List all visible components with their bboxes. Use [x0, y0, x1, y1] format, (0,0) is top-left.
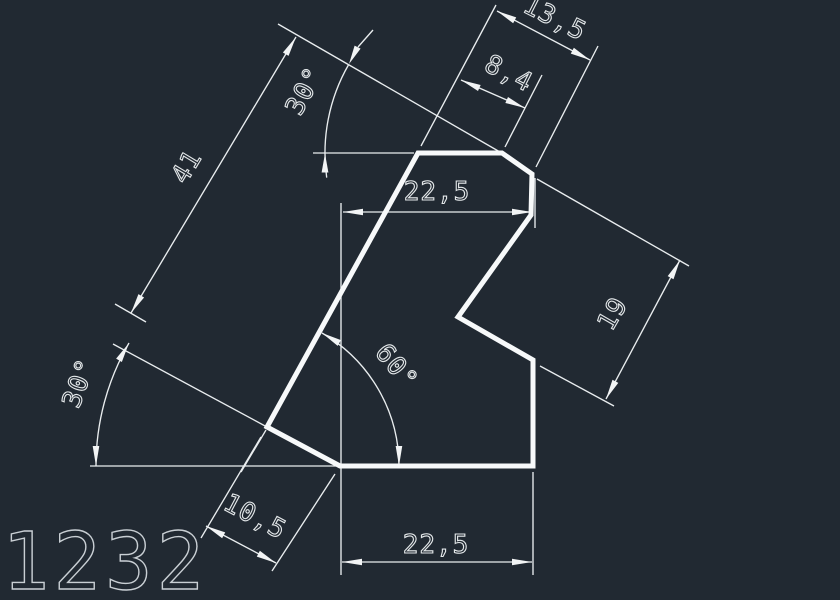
dim-label-8-4: 8,4	[480, 49, 538, 98]
dimension-19[interactable]: 19	[537, 179, 689, 406]
angle-arc	[96, 343, 129, 466]
arc-arrowhead	[349, 46, 361, 64]
dimension-8-4[interactable]: 8,4	[461, 49, 542, 147]
dim-label-13-5: 13,5	[518, 0, 591, 47]
dim-label-10-5: 10,5	[218, 488, 291, 546]
dimension-22-5-bottom[interactable]: 22,5	[342, 472, 533, 575]
dim-label-19: 19	[592, 292, 635, 336]
dim-label-22-5-bottom: 22,5	[403, 530, 470, 560]
dimension-10-5[interactable]: 10,5	[201, 437, 335, 571]
extension-line	[540, 366, 614, 406]
dim-label-41: 41	[166, 145, 209, 189]
dim-label-22-5-top: 22,5	[404, 177, 471, 207]
angle-label-30-top: 30°	[280, 62, 330, 120]
dimension-41[interactable]: 41	[115, 37, 296, 322]
drawing-number: 1232	[2, 516, 208, 600]
extension-line-chamfer	[113, 344, 267, 427]
arrow-tail	[358, 30, 373, 47]
part-outline[interactable]	[267, 153, 533, 466]
angle-dimension-60[interactable]: 60°	[241, 333, 424, 472]
angle-label-30-left: 30°	[57, 355, 102, 412]
dimension-line	[131, 37, 296, 313]
cad-canvas[interactable]: 41 30° 13,5 8,4 22,5 19	[0, 0, 840, 600]
extension-line	[536, 46, 598, 167]
cad-viewport[interactable]: 41 30° 13,5 8,4 22,5 19	[0, 0, 840, 600]
arc-arrowhead	[322, 154, 329, 173]
extension-line	[115, 304, 146, 322]
angle-arc	[325, 65, 349, 178]
extension-line	[537, 179, 689, 266]
angle-dimension-30-left[interactable]: 30°	[57, 343, 336, 466]
